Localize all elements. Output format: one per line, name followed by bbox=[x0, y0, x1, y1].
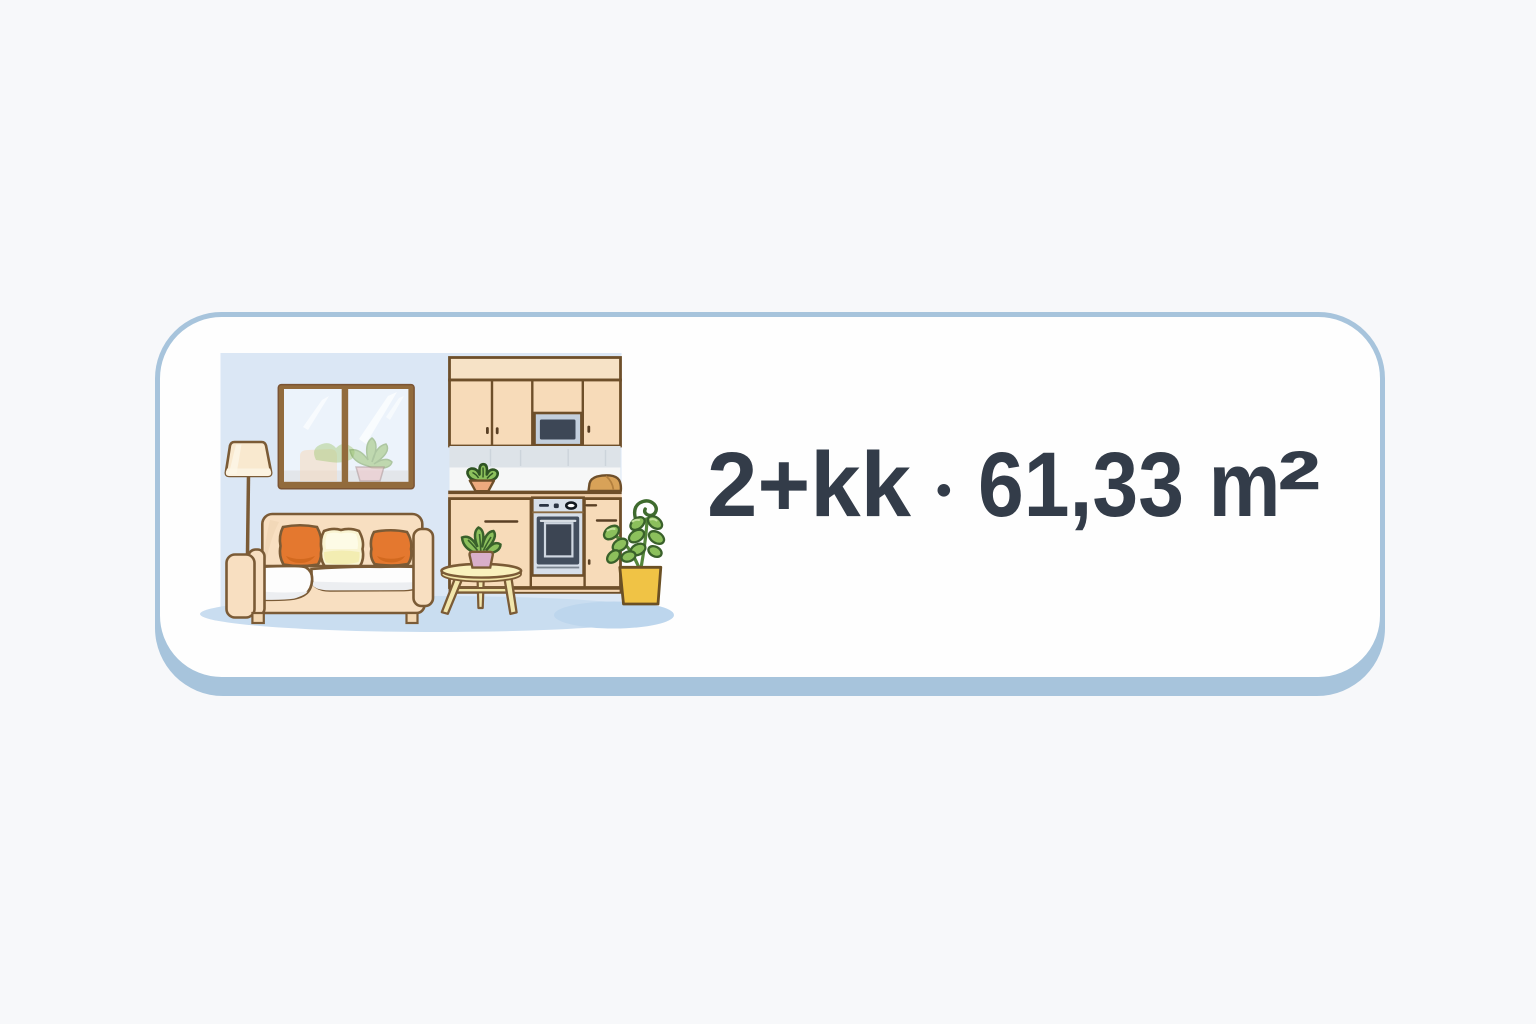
svg-text:2+kk: 2+kk bbox=[707, 434, 912, 536]
svg-text:61,33: 61,33 bbox=[978, 434, 1184, 536]
svg-text:²: ² bbox=[1277, 429, 1321, 549]
svg-text:m: m bbox=[1209, 434, 1281, 536]
